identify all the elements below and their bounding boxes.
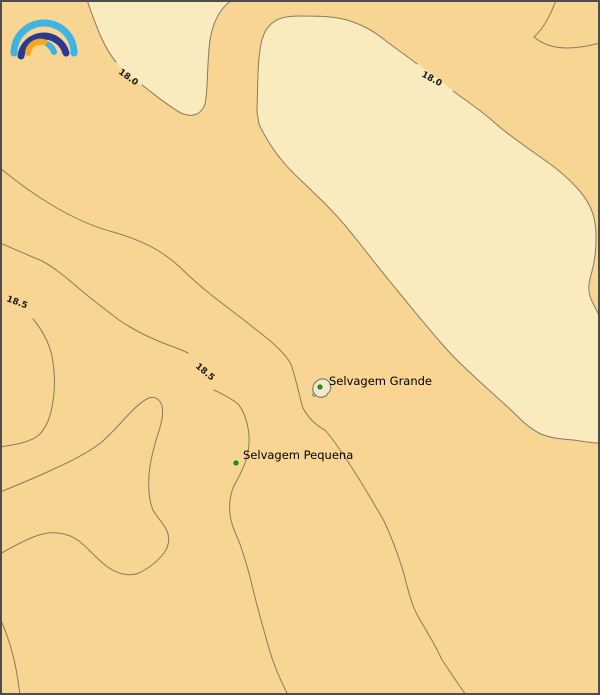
island-selvagem-grande-islet bbox=[313, 394, 316, 397]
label-selvagem-pequena: Selvagem Pequena bbox=[243, 448, 353, 462]
selvagem-pequena-marker-dot bbox=[234, 461, 238, 465]
label-selvagem-grande: Selvagem Grande bbox=[329, 374, 432, 388]
map-canvas: 18.0 18.0 18.5 18.5 Selvagem Grande Selv… bbox=[0, 0, 600, 695]
selvagem-grande-marker-dot bbox=[318, 385, 322, 389]
